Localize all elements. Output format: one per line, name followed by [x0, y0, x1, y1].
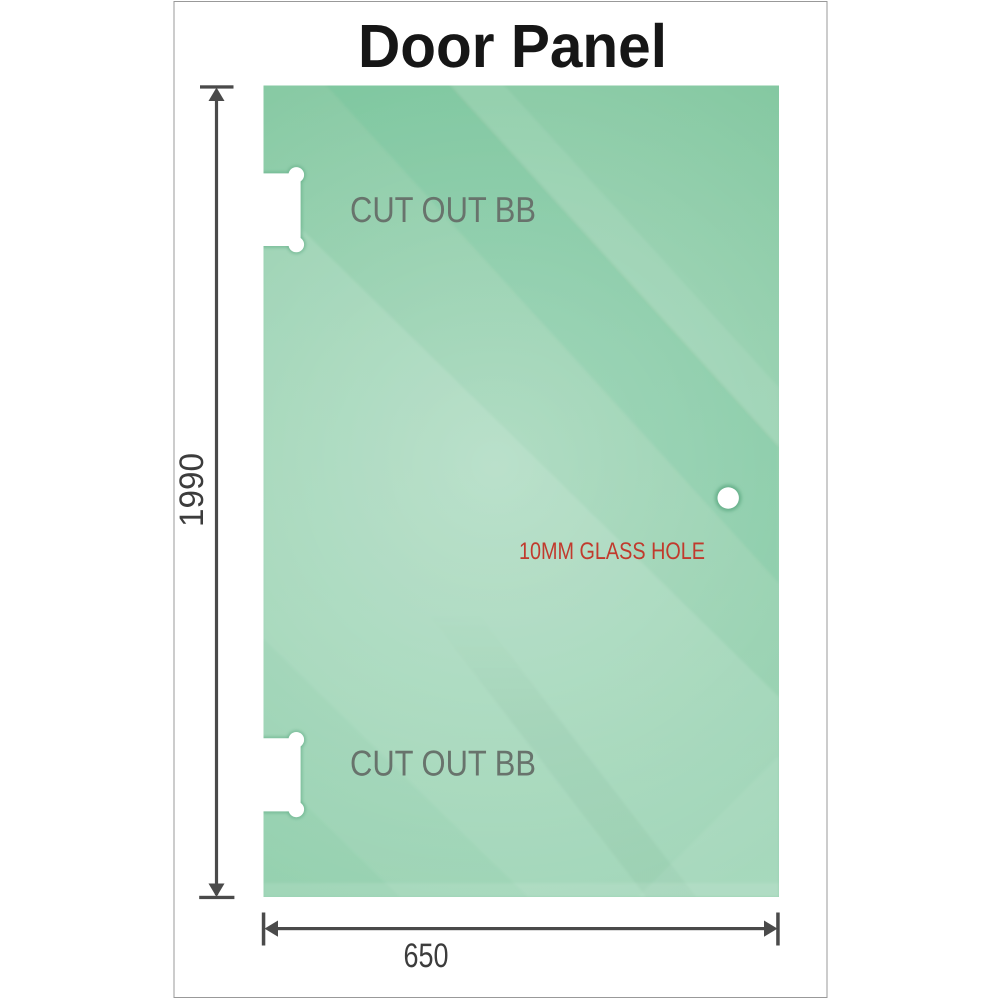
svg-text:10MM GLASS HOLE: 10MM GLASS HOLE: [519, 538, 705, 565]
svg-text:CUT OUT BB: CUT OUT BB: [350, 743, 536, 784]
svg-text:CUT OUT BB: CUT OUT BB: [350, 189, 536, 230]
svg-text:Door Panel: Door Panel: [358, 12, 667, 80]
svg-text:650: 650: [404, 937, 449, 975]
svg-text:1990: 1990: [173, 453, 211, 527]
